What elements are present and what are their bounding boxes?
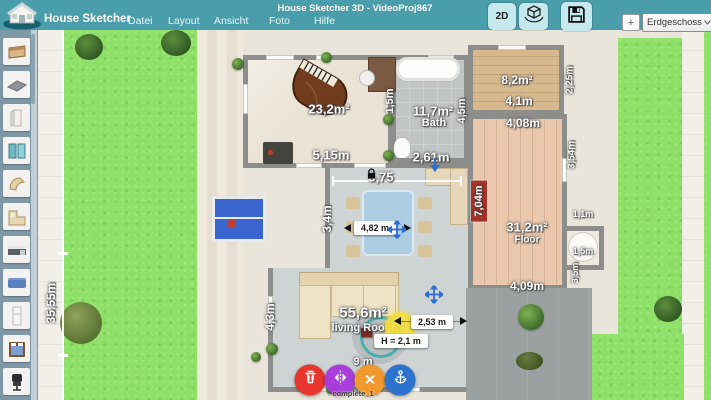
menu-layout[interactable]: Layout bbox=[168, 15, 200, 27]
bush bbox=[75, 34, 103, 60]
floppy-disk-icon bbox=[566, 4, 587, 30]
library-item-chaise-longue[interactable] bbox=[3, 170, 30, 197]
trash-icon bbox=[302, 370, 318, 391]
top-toolbar: House Sketcher 3D - VideoProj867 House S… bbox=[0, 0, 711, 30]
delete-object-button[interactable] bbox=[295, 365, 326, 396]
potted-plant bbox=[266, 343, 278, 355]
potted-plant bbox=[383, 114, 394, 125]
menu-foto[interactable]: Foto bbox=[269, 15, 290, 27]
kitchen-counter-side[interactable] bbox=[450, 168, 468, 225]
anchor-object-button[interactable] bbox=[385, 365, 416, 396]
distance-arrow-left bbox=[394, 317, 401, 325]
floor-selector-dropdown[interactable]: Erdgeschoss bbox=[642, 13, 711, 32]
grass-far-right bbox=[704, 30, 711, 400]
view-2d-button[interactable]: 2D bbox=[488, 3, 516, 30]
floor-room-right: 3,54m bbox=[567, 141, 578, 169]
menu-datei[interactable]: Datei bbox=[128, 15, 153, 27]
dining-chair[interactable] bbox=[346, 197, 360, 209]
room-storage[interactable] bbox=[468, 45, 564, 115]
dining-chair[interactable] bbox=[418, 221, 432, 233]
save-button[interactable] bbox=[561, 2, 592, 31]
app-name: House Sketcher bbox=[44, 13, 131, 25]
potted-plant bbox=[321, 52, 332, 63]
shower-basin bbox=[568, 232, 598, 262]
library-item-double-window[interactable] bbox=[3, 137, 30, 164]
potted-plant bbox=[383, 150, 394, 161]
ping-pong-table[interactable] bbox=[212, 196, 266, 242]
app-logo-icon[interactable] bbox=[2, 0, 42, 35]
close-icon: ✕ bbox=[364, 372, 376, 389]
library-item-double-bed[interactable] bbox=[3, 335, 30, 362]
room-floor-hall[interactable] bbox=[468, 114, 567, 290]
drop-arrow-icon bbox=[430, 158, 440, 172]
move-handle-icon[interactable] bbox=[425, 286, 443, 309]
lot-measure-line bbox=[62, 30, 64, 400]
hall-dim-line bbox=[332, 180, 462, 182]
room-alcove[interactable] bbox=[562, 226, 604, 270]
flip-horizontal-icon bbox=[332, 370, 348, 391]
sidewalk-right bbox=[682, 30, 704, 400]
sidewalk-left bbox=[38, 30, 64, 400]
selected-object-label: complete_1 bbox=[332, 389, 373, 398]
alcove-top-dim: 1,1m bbox=[573, 209, 594, 219]
grass-bottom-right bbox=[592, 334, 684, 400]
cube-3d-icon bbox=[523, 4, 545, 30]
floorplan-canvas[interactable]: 35,55m bbox=[38, 30, 711, 400]
bush bbox=[654, 296, 682, 322]
view-3d-button[interactable] bbox=[519, 3, 548, 30]
patio-plant bbox=[518, 304, 544, 330]
chevron-down-icon bbox=[704, 17, 711, 28]
library-item-kitchen-unit[interactable] bbox=[3, 236, 30, 263]
stove[interactable] bbox=[263, 142, 293, 164]
library-item-blue-sofa[interactable] bbox=[3, 269, 30, 296]
bush bbox=[161, 30, 191, 56]
menu-hilfe[interactable]: Hilfe bbox=[314, 15, 335, 27]
table-arrow-left bbox=[344, 224, 351, 232]
library-item-office-chair[interactable] bbox=[3, 368, 30, 395]
sidebar-scrollbar[interactable] bbox=[31, 30, 37, 400]
library-item-floor-panel[interactable] bbox=[3, 71, 30, 98]
turtle-ornament bbox=[516, 352, 543, 370]
potted-plant bbox=[232, 58, 244, 70]
library-item-cabinet[interactable] bbox=[3, 302, 30, 329]
toilet[interactable] bbox=[394, 138, 410, 158]
anchor-icon bbox=[392, 370, 408, 391]
olive-tree bbox=[60, 302, 102, 344]
coffee-table-object[interactable] bbox=[361, 328, 372, 337]
add-floor-button[interactable]: + bbox=[622, 14, 640, 31]
object-library-sidebar bbox=[0, 30, 38, 400]
dining-chair[interactable] bbox=[418, 197, 432, 209]
potted-plant bbox=[251, 352, 261, 362]
distance-badge: 2,53 m bbox=[411, 315, 453, 329]
bathtub[interactable] bbox=[396, 57, 460, 81]
move-handle-icon[interactable] bbox=[388, 221, 406, 244]
chair[interactable] bbox=[359, 70, 375, 86]
sofa-chaise[interactable] bbox=[299, 285, 331, 339]
house-sketcher-app: House Sketcher 3D - VideoProj867 House S… bbox=[0, 0, 711, 400]
lock-icon[interactable] bbox=[367, 166, 376, 184]
object-height-badge: H = 2,1 m bbox=[374, 334, 428, 348]
library-item-door[interactable] bbox=[3, 104, 30, 131]
distance-arrow-right bbox=[460, 317, 467, 325]
dining-chair[interactable] bbox=[346, 245, 360, 257]
menu-ansicht[interactable]: Ansicht bbox=[214, 15, 248, 27]
grass-left bbox=[64, 30, 197, 400]
window-title: House Sketcher 3D - VideoProj867 bbox=[277, 3, 432, 14]
floor-selector-value: Erdgeschoss bbox=[647, 17, 702, 28]
library-item-corner-sofa[interactable] bbox=[3, 203, 30, 230]
library-item-single-bed[interactable] bbox=[3, 38, 30, 65]
dining-chair[interactable] bbox=[418, 245, 432, 257]
storage-right: 2,25m bbox=[565, 66, 576, 94]
